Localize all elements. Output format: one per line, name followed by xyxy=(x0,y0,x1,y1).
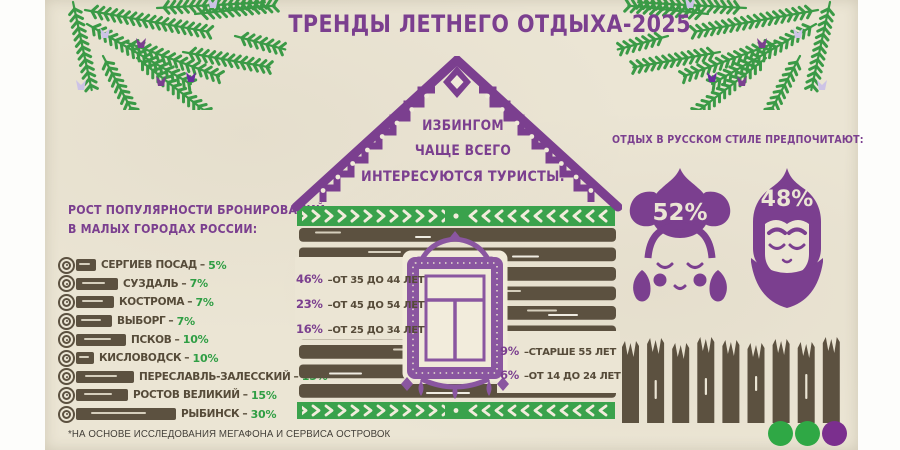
roof xyxy=(292,56,622,213)
log-end-icon xyxy=(58,275,75,292)
age-label: –ОТ 25 ДО 34 ЛЕТ xyxy=(328,325,425,336)
log-bar-icon xyxy=(76,296,114,308)
roof-text-line2: ЧАЩЕ ВСЕГО xyxy=(355,143,571,159)
city-percent: 7% xyxy=(177,315,195,328)
footnote: *НА ОСНОВЕ ИССЛЕДОВАНИЯ МЕГАФОНА И СЕРВИ… xyxy=(68,429,390,440)
list-item: СУЗДАЛЬ–7% xyxy=(58,275,328,294)
style-preference-heading: ОТДЫХ В РУССКОМ СТИЛЕ ПРЕДПОЧИТАЮТ: xyxy=(612,133,864,146)
log-end-icon xyxy=(58,406,75,423)
cities-heading-line1: РОСТ ПОПУЛЯРНОСТИ БРОНИРОВАНИЙ xyxy=(68,201,325,220)
chevron-band-bottom xyxy=(297,402,615,419)
cities-heading-line2: В МАЛЫХ ГОРОДАХ РОССИИ: xyxy=(68,220,325,239)
age-label: –СТАРШЕ 55 ЛЕТ xyxy=(524,347,616,358)
city-percent: 10% xyxy=(193,352,219,365)
city-percent: 15% xyxy=(251,389,277,402)
log-end-icon xyxy=(58,387,75,404)
dash: – xyxy=(184,352,189,364)
log-end-icon xyxy=(58,294,75,311)
cities-heading: РОСТ ПОПУЛЯРНОСТИ БРОНИРОВАНИЙ В МАЛЫХ Г… xyxy=(68,201,325,239)
list-item: ПСКОВ–10% xyxy=(58,330,328,349)
city-name: РОСТОВ ВЕЛИКИЙ xyxy=(133,389,240,401)
city-name: СЕРГИЕВ ПОСАД xyxy=(101,259,197,271)
list-item: РЫБИНСК–30% xyxy=(58,405,328,424)
roof-text-line3: ИНТЕРЕСУЮТСЯ ТУРИСТЫ: xyxy=(355,169,571,185)
list-item: КОСТРОМА–7% xyxy=(58,293,328,312)
list-item: КИСЛОВОДСК–10% xyxy=(58,349,328,368)
age-group-row: 16%–ОТ 25 ДО 34 ЛЕТ xyxy=(296,318,424,337)
dot-green-2 xyxy=(795,421,820,446)
dash: – xyxy=(200,259,205,271)
woman-figure-icon: 52% xyxy=(624,166,736,306)
age-label: –ОТ 45 ДО 54 ЛЕТ xyxy=(328,300,425,311)
log-end-icon xyxy=(58,257,75,274)
fence-barcode xyxy=(622,337,840,425)
infographic-poster: ТРЕНДЫ ЛЕТНЕГО ОТДЫХА-2025 РОСТ ПОПУЛЯРН… xyxy=(0,0,900,450)
city-name: РЫБИНСК xyxy=(181,408,239,420)
dash: – xyxy=(243,389,248,401)
dash: – xyxy=(242,408,247,420)
log-bar-icon xyxy=(76,334,126,346)
page-title: ТРЕНДЫ ЛЕТНЕГО ОТДЫХА-2025 xyxy=(288,10,637,38)
log-bar-icon xyxy=(76,278,118,290)
age-percent: 16% xyxy=(296,322,323,336)
city-list: СЕРГИЕВ ПОСАД–5% СУЗДАЛЬ–7% КОСТРОМА–7% … xyxy=(58,256,328,423)
floral-branch-left-icon xyxy=(45,0,290,110)
dot-purple xyxy=(822,421,847,446)
city-name: СУЗДАЛЬ xyxy=(123,278,178,290)
age-group-row: 46%–ОТ 35 ДО 44 ЛЕТ xyxy=(296,268,424,287)
log-bar-icon xyxy=(76,315,112,327)
age-group-row: 6%–ОТ 14 ДО 24 ЛЕТ xyxy=(500,364,621,383)
log-end-icon xyxy=(58,350,75,367)
woman-percent: 52% xyxy=(652,200,707,226)
dash: – xyxy=(181,278,186,290)
city-name: ПЕРЕСЛАВЛЬ-ЗАЛЕССКИЙ xyxy=(139,371,291,383)
age-percent: 6% xyxy=(500,368,519,382)
log-bar-icon xyxy=(76,408,176,420)
age-percent: 23% xyxy=(296,297,323,311)
log-end-icon xyxy=(58,368,75,385)
city-percent: 30% xyxy=(251,408,277,421)
city-name: КИСЛОВОДСК xyxy=(99,352,181,364)
list-item: РОСТОВ ВЕЛИКИЙ–15% xyxy=(58,386,328,405)
list-item: ВЫБОРГ–7% xyxy=(58,312,328,331)
log-bar-icon xyxy=(76,352,94,364)
age-percent: 46% xyxy=(296,272,323,286)
city-percent: 7% xyxy=(195,296,213,309)
city-percent: 7% xyxy=(190,277,208,290)
age-label: –ОТ 14 ДО 24 ЛЕТ xyxy=(524,371,621,382)
log-bar-icon xyxy=(76,389,128,401)
age-group-row: 9%–СТАРШЕ 55 ЛЕТ xyxy=(500,340,616,359)
city-percent: 5% xyxy=(208,259,226,272)
window-icon xyxy=(397,229,513,399)
city-name: ПСКОВ xyxy=(131,334,172,346)
city-percent: 10% xyxy=(183,333,209,346)
city-name: ВЫБОРГ xyxy=(117,315,165,327)
dash: – xyxy=(168,315,173,327)
list-item: СЕРГИЕВ ПОСАД–5% xyxy=(58,256,328,275)
list-item: ПЕРЕСЛАВЛЬ-ЗАЛЕССКИЙ–15% xyxy=(58,368,328,387)
log-end-icon xyxy=(58,313,75,330)
age-group-row: 23%–ОТ 45 ДО 54 ЛЕТ xyxy=(296,293,424,312)
city-name: КОСТРОМА xyxy=(119,296,184,308)
age-label: –ОТ 35 ДО 44 ЛЕТ xyxy=(328,275,425,286)
age-percent: 9% xyxy=(500,344,519,358)
log-bar-icon xyxy=(76,259,96,271)
dash: – xyxy=(187,296,192,308)
man-figure-icon: 48% xyxy=(737,166,837,314)
log-bar-icon xyxy=(76,371,134,383)
dash: – xyxy=(175,334,180,346)
dot-green-1 xyxy=(768,421,793,446)
man-percent: 48% xyxy=(761,187,814,212)
roof-text-line1: ИЗБИНГОМ xyxy=(355,118,571,134)
log-end-icon xyxy=(58,331,75,348)
